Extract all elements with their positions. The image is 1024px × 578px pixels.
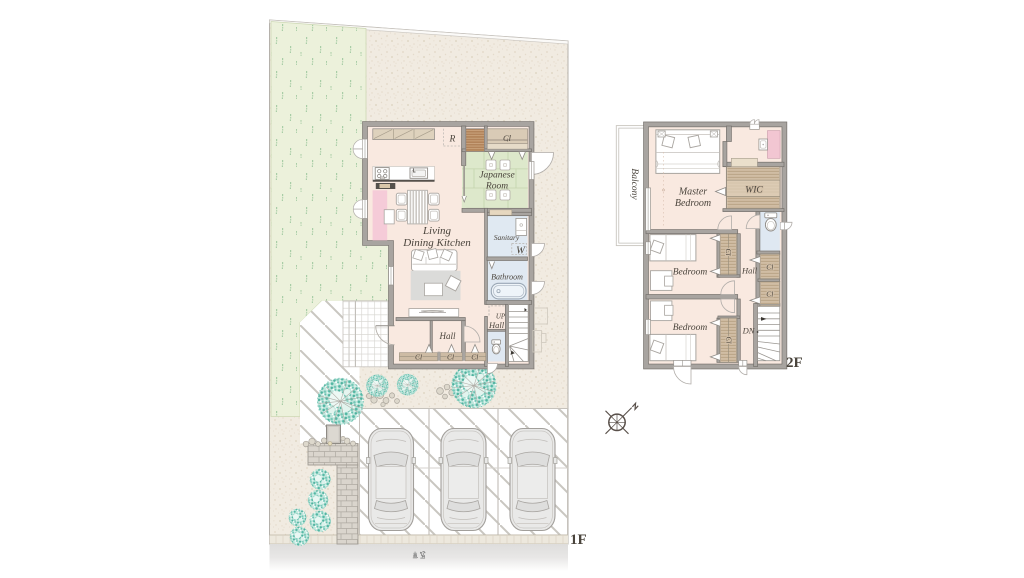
svg-text:Cl: Cl [503, 133, 512, 143]
svg-text:Bathroom: Bathroom [491, 273, 523, 282]
svg-text:Master: Master [678, 187, 707, 198]
svg-text:Hall: Hall [488, 320, 505, 330]
svg-text:W: W [516, 246, 526, 257]
svg-text:Cl: Cl [724, 248, 733, 255]
svg-text:DN: DN [742, 326, 756, 336]
svg-text:Balcony: Balcony [629, 168, 639, 200]
svg-text:Cl: Cl [766, 263, 773, 272]
svg-text:Cl: Cl [766, 290, 773, 299]
svg-text:1F: 1F [570, 532, 587, 548]
svg-text:Cl: Cl [447, 353, 454, 362]
svg-text:Bedroom: Bedroom [673, 268, 708, 278]
svg-text:2F: 2F [786, 355, 803, 371]
svg-text:Dining Kitchen: Dining Kitchen [402, 237, 471, 249]
svg-text:R: R [449, 135, 456, 145]
svg-text:Cl: Cl [471, 353, 478, 362]
svg-text:Hall: Hall [741, 266, 758, 276]
svg-text:Bedroom: Bedroom [673, 323, 708, 333]
svg-text:WIC: WIC [745, 186, 763, 196]
svg-text:Room: Room [485, 182, 508, 192]
svg-text:Cl: Cl [415, 353, 422, 362]
svg-text:Japanese: Japanese [479, 171, 514, 181]
svg-text:Cl: Cl [724, 336, 733, 343]
svg-text:Bedroom: Bedroom [675, 198, 711, 209]
svg-text:Hall: Hall [438, 331, 456, 341]
svg-text:Living: Living [422, 225, 452, 237]
